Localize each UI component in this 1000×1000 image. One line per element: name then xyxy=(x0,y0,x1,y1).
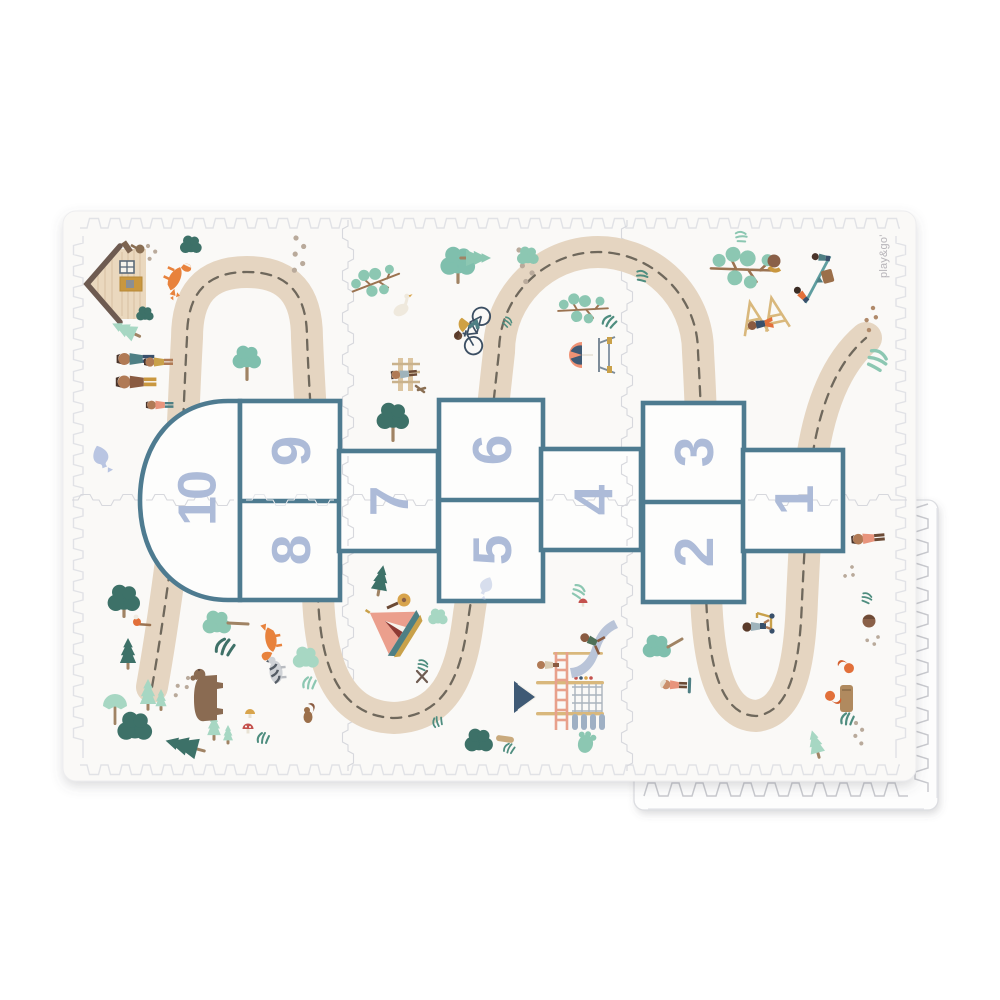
svg-text:9: 9 xyxy=(260,436,322,467)
svg-text:3: 3 xyxy=(663,437,725,468)
svg-text:4: 4 xyxy=(562,484,624,515)
svg-text:1: 1 xyxy=(763,485,825,516)
svg-text:5: 5 xyxy=(461,535,523,566)
svg-text:10: 10 xyxy=(167,472,227,526)
svg-text:7: 7 xyxy=(358,486,420,517)
svg-text:play&go’: play&go’ xyxy=(878,234,890,278)
svg-text:2: 2 xyxy=(663,537,725,568)
svg-text:6: 6 xyxy=(461,435,523,466)
svg-text:8: 8 xyxy=(260,535,322,566)
